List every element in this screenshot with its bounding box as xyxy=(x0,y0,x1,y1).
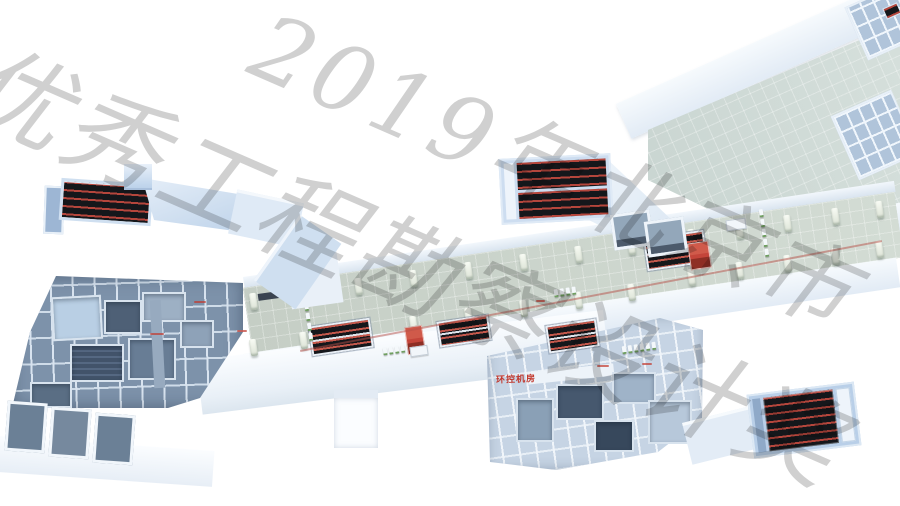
skylight-frame xyxy=(644,216,689,257)
southwest-room xyxy=(48,407,91,460)
fare-gate-post xyxy=(633,344,638,352)
room-label-mark xyxy=(536,300,545,302)
equipment-room xyxy=(142,292,186,322)
se-entrance-deck xyxy=(835,387,855,442)
fare-gate-post xyxy=(554,289,559,297)
nw-entrance-cube xyxy=(124,164,152,190)
fare-gate-post xyxy=(565,287,570,295)
n-entrance-box xyxy=(498,153,613,225)
fare-gate-post xyxy=(383,347,388,355)
room-label-mark xyxy=(150,333,164,335)
fare-gate-post xyxy=(622,346,627,354)
room-label-mark xyxy=(642,363,652,365)
fare-gate-post xyxy=(559,288,564,296)
n-entrance-cap xyxy=(504,163,517,219)
vent-shaft-box xyxy=(334,390,378,448)
se-entrance-box xyxy=(747,382,862,459)
station-3d-render: 环控机房 xyxy=(0,0,900,506)
equipment-room xyxy=(104,300,142,334)
equipment-room xyxy=(594,420,634,452)
fare-gate-post xyxy=(394,345,399,353)
elevator-shaft xyxy=(687,241,712,271)
fare-gate-post xyxy=(639,343,644,351)
fare-gate-post xyxy=(628,345,633,353)
equipment-room xyxy=(556,384,604,420)
escalator-lane xyxy=(517,158,607,189)
room-label-env-control: 环控机房 xyxy=(496,371,536,385)
fare-gate-post xyxy=(645,343,650,351)
escalator-lane xyxy=(518,188,608,219)
equipment-room xyxy=(51,295,103,342)
southwest-room xyxy=(4,401,47,454)
room-label-mark xyxy=(597,365,609,367)
equipment-room xyxy=(516,398,554,442)
southwest-room xyxy=(92,413,135,466)
equipment-room xyxy=(70,344,124,382)
room-label-mark xyxy=(194,301,206,303)
escalator-lane xyxy=(763,389,839,451)
nw-entrance-landing xyxy=(142,170,242,236)
equipment-room xyxy=(180,320,214,348)
n-entrance-escalator-lanes xyxy=(517,158,609,219)
fare-gate-post xyxy=(388,346,393,354)
room-label-mark xyxy=(237,330,247,332)
